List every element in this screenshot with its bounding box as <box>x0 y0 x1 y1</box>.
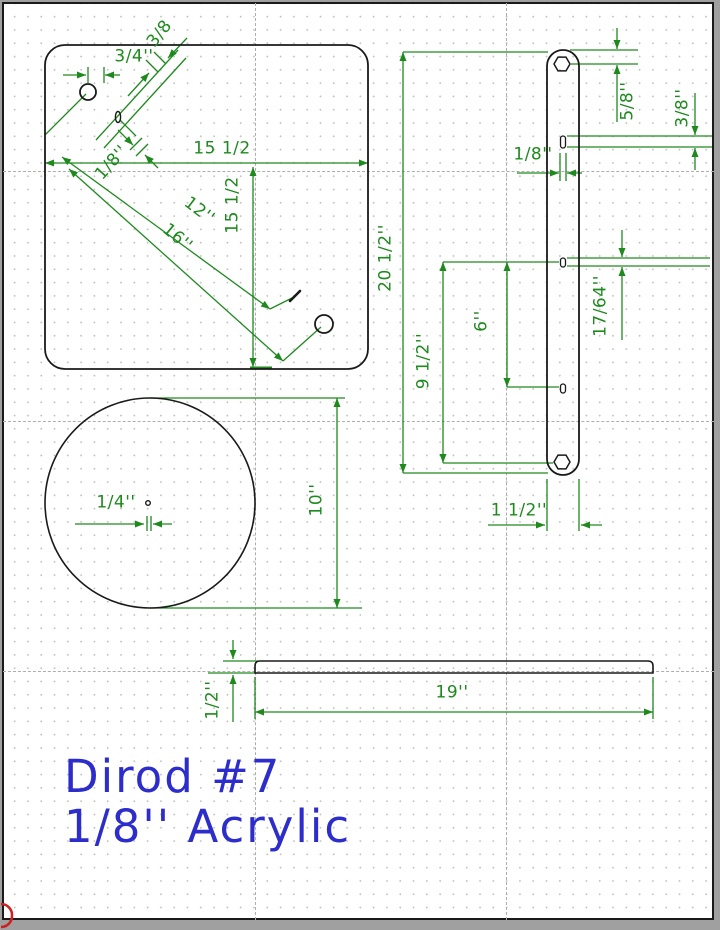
dim-strip-length: 19'' <box>436 685 469 702</box>
dim-bar-length: 20 1/2'' <box>378 224 395 292</box>
dim-bar-hole-span: 9 1/2'' <box>416 333 433 389</box>
dim-plate-height: 15 1/2 <box>225 176 242 233</box>
plate-bottom-hole <box>315 315 333 333</box>
corner-red-mark <box>1 904 12 927</box>
dim-plate-hole-offset: 3/4'' <box>114 49 153 66</box>
bar-top-hex-hole <box>554 57 570 71</box>
dim-plate-width: 15 1/2 <box>193 141 250 158</box>
dim-bar-slot-width: 1/8'' <box>513 147 552 164</box>
dim-bar-slot-span: 6'' <box>474 310 491 332</box>
dim-disc-diameter: 10'' <box>309 484 326 517</box>
dim-disc-center-hole: 1/4'' <box>96 495 135 512</box>
dim-bar-mid-slot-length: 17/64'' <box>593 275 610 337</box>
drawing-title-line2: 1/8'' Acrylic <box>64 803 351 851</box>
bar-slot-bottom <box>561 384 566 393</box>
part-outlines <box>45 45 653 673</box>
strip-side-view <box>255 661 653 673</box>
dim-bar-top-slot-length: 3/8'' <box>675 88 692 127</box>
cad-viewer-window: 3/4'' 3/8 15 1/2 15 1/2 1/8'' 12'' 16'' … <box>0 0 720 930</box>
disc-center-hole <box>146 501 151 506</box>
dim-bar-top-hole-offset: 5/8'' <box>620 81 637 120</box>
bar-slot-middle <box>561 258 566 267</box>
dim-bar-width: 1 1/2'' <box>491 503 547 520</box>
bar-bottom-hex-hole <box>554 455 570 469</box>
plate-corner-hole <box>80 84 96 100</box>
dim-strip-thickness: 1/2'' <box>205 680 222 719</box>
dimension-lines <box>45 28 712 722</box>
plate-diag-slot <box>290 291 300 301</box>
bar-slot-top <box>561 136 566 148</box>
drawing-title-line1: Dirod #7 <box>64 753 281 801</box>
